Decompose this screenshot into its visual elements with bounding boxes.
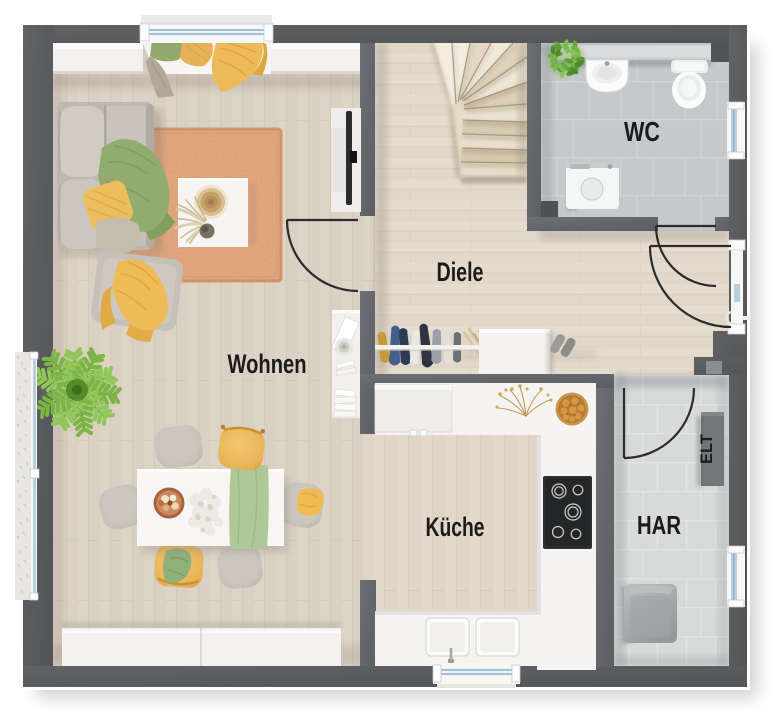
svg-text:ELT: ELT (697, 433, 716, 464)
svg-text:Küche: Küche (426, 512, 485, 542)
svg-text:HAR: HAR (637, 510, 681, 540)
svg-text:WC: WC (624, 116, 660, 147)
svg-text:Diele: Diele (437, 257, 484, 287)
svg-text:Wohnen: Wohnen (228, 349, 307, 379)
